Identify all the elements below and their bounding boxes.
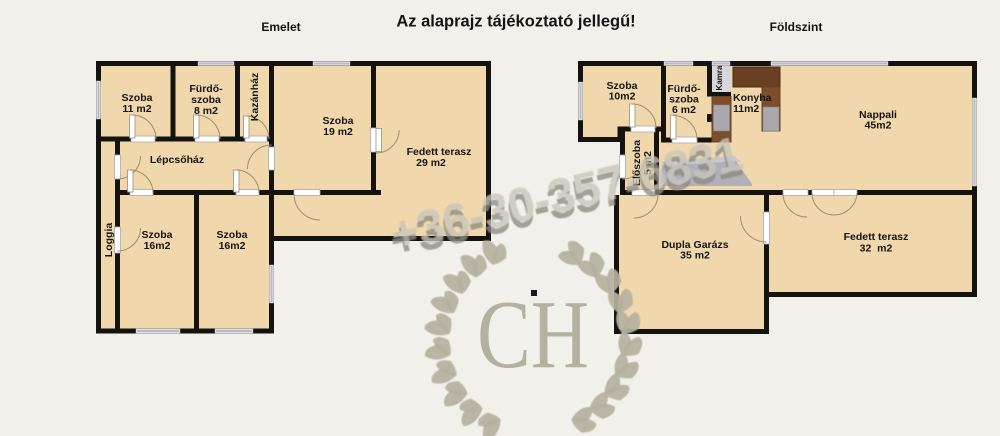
svg-text:32 m2: 32 m2 bbox=[860, 243, 893, 255]
svg-text:16m2: 16m2 bbox=[144, 240, 171, 252]
svg-text:Földszint: Földszint bbox=[770, 20, 823, 34]
svg-text:Az alaprajz tájékoztató jelleg: Az alaprajz tájékoztató jellegű! bbox=[396, 13, 635, 31]
svg-text:Kamra: Kamra bbox=[715, 65, 724, 90]
svg-text:6 m2: 6 m2 bbox=[672, 104, 696, 116]
svg-text:Emelet: Emelet bbox=[261, 20, 300, 34]
svg-text:45m2: 45m2 bbox=[865, 120, 892, 132]
svg-text:11 m2: 11 m2 bbox=[122, 103, 151, 115]
svg-text:Kazánház: Kazánház bbox=[249, 73, 261, 121]
svg-text:11m2: 11m2 bbox=[733, 103, 759, 115]
svg-text:16m2: 16m2 bbox=[219, 240, 246, 252]
svg-text:Lépcsőház: Lépcsőház bbox=[150, 154, 204, 166]
svg-text:Loggia: Loggia bbox=[103, 223, 115, 258]
svg-text:35 m2: 35 m2 bbox=[680, 250, 710, 262]
svg-text:Fedett terasz: Fedett terasz bbox=[844, 231, 909, 243]
svg-text:CH: CH bbox=[477, 281, 589, 389]
svg-text:10m2: 10m2 bbox=[609, 91, 636, 103]
svg-text:8 m2: 8 m2 bbox=[194, 105, 218, 117]
svg-text:29 m2: 29 m2 bbox=[416, 157, 446, 169]
svg-text:19 m2: 19 m2 bbox=[323, 126, 353, 138]
